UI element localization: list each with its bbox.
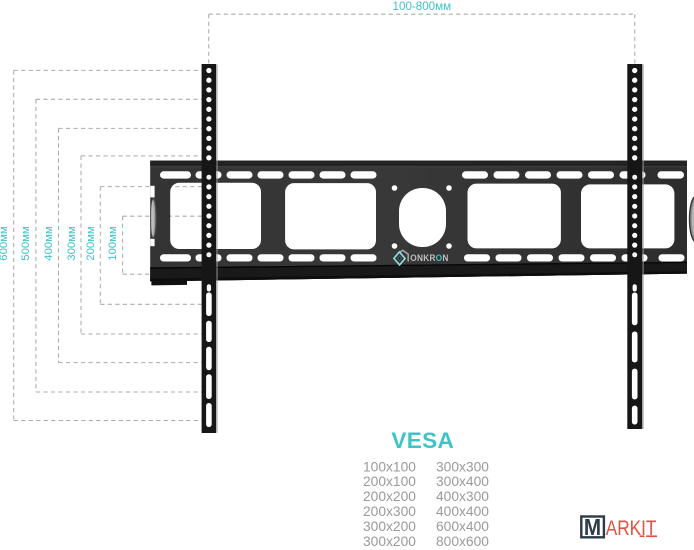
svg-text:200x200: 200x200 <box>363 489 416 504</box>
svg-text:ONKRON: ONKRON <box>410 253 448 264</box>
svg-text:400x300: 400x300 <box>436 489 489 504</box>
svg-text:300x400: 300x400 <box>436 474 489 489</box>
svg-text:400x400: 400x400 <box>436 504 489 519</box>
svg-text:200x300: 200x300 <box>363 504 416 519</box>
svg-text:100мм: 100мм <box>107 226 119 260</box>
svg-text:300мм: 300мм <box>66 226 78 260</box>
svg-text:400мм: 400мм <box>43 226 55 260</box>
svg-text:300x200: 300x200 <box>363 519 416 534</box>
svg-text:VESA: VESA <box>391 428 454 453</box>
svg-text:300x200: 300x200 <box>363 534 416 549</box>
svg-text:100x100: 100x100 <box>363 459 416 474</box>
svg-text:600x400: 600x400 <box>436 519 489 534</box>
svg-text:200x100: 200x100 <box>363 474 416 489</box>
svg-text:300x300: 300x300 <box>436 459 489 474</box>
svg-text:600мм: 600мм <box>0 226 10 260</box>
svg-text:M: M <box>584 514 601 541</box>
svg-text:500мм: 500мм <box>20 226 32 260</box>
svg-text:800x600: 800x600 <box>436 534 489 549</box>
svg-text:100-800мм: 100-800мм <box>393 0 452 13</box>
svg-text:200мм: 200мм <box>85 226 97 260</box>
